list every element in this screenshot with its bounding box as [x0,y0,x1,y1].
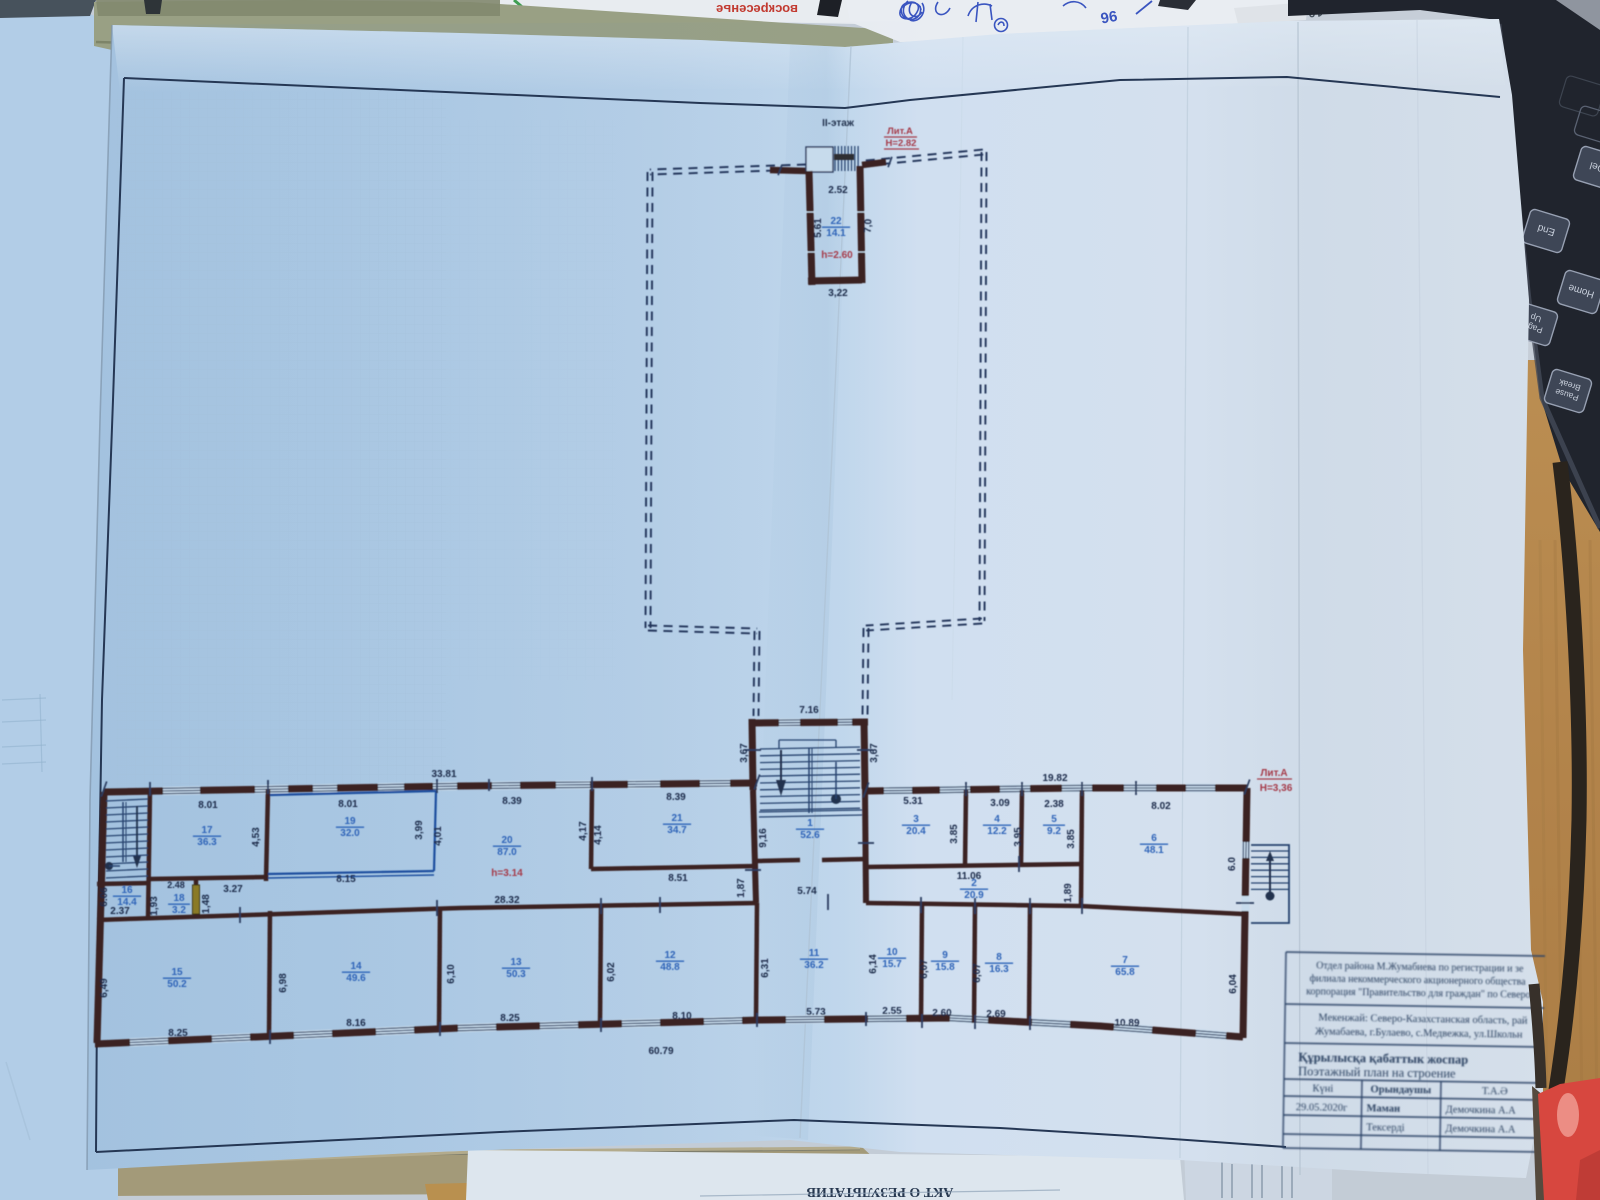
svg-text:65.8: 65.8 [1115,967,1135,978]
svg-text:7.16: 7.16 [799,705,819,716]
svg-text:8.39: 8.39 [666,792,686,803]
svg-text:6,02: 6,02 [606,962,617,982]
svg-text:2: 2 [971,878,977,889]
svg-text:20.4: 20.4 [906,826,926,837]
svg-text:48.8: 48.8 [660,962,680,973]
svg-text:Поэтажный план на строение: Поэтажный план на строение [1298,1064,1456,1080]
svg-text:5.31: 5.31 [903,796,923,807]
svg-text:6,07: 6,07 [972,963,983,983]
svg-text:11.06: 11.06 [957,871,982,882]
svg-text:Демочкина А.А: Демочкина А.А [1445,1105,1516,1117]
svg-text:Н=3,36: Н=3,36 [1260,783,1293,794]
svg-text:8.39: 8.39 [502,796,522,807]
svg-text:28.32: 28.32 [494,895,519,906]
svg-text:3,67: 3,67 [869,743,880,763]
svg-text:14.4: 14.4 [117,897,137,908]
svg-text:7: 7 [1122,955,1128,966]
svg-text:10: 10 [886,947,898,958]
svg-text:8.10: 8.10 [672,1011,692,1022]
svg-text:5.74: 5.74 [797,886,817,897]
svg-text:Т.А.Ә: Т.А.Ә [1482,1086,1508,1097]
svg-text:6.06: 6.06 [99,887,110,907]
svg-text:5.73: 5.73 [806,1007,826,1018]
svg-text:8.16: 8.16 [346,1018,366,1029]
svg-text:4,53: 4,53 [251,827,262,847]
svg-text:19: 19 [344,816,356,827]
svg-text:3,99: 3,99 [414,820,425,840]
svg-text:15.8: 15.8 [935,962,955,973]
svg-text:6,14: 6,14 [868,954,879,974]
svg-text:13: 13 [510,957,522,968]
svg-text:8.25: 8.25 [168,1028,188,1039]
svg-text:9,16: 9,16 [758,828,769,848]
svg-text:21: 21 [671,813,683,824]
svg-text:Демочкина А.А: Демочкина А.А [1445,1124,1516,1136]
svg-text:2.69: 2.69 [986,1009,1006,1020]
svg-text:6,07: 6,07 [919,959,930,979]
svg-text:50.2: 50.2 [167,979,187,990]
svg-text:8.25: 8.25 [500,1013,520,1024]
svg-text:12: 12 [664,950,676,961]
svg-text:5.61: 5.61 [813,218,824,238]
svg-text:15: 15 [171,967,183,978]
svg-text:17: 17 [201,825,213,836]
svg-text:15.7: 15.7 [882,959,902,970]
svg-text:34.7: 34.7 [667,825,687,836]
svg-text:36.2: 36.2 [804,960,824,971]
svg-text:3,22: 3,22 [828,288,848,299]
svg-text:1,48: 1,48 [201,894,212,914]
svg-text:1,89: 1,89 [1063,883,1074,903]
svg-text:8: 8 [996,952,1002,963]
svg-text:49.6: 49.6 [346,973,366,984]
svg-text:12.2: 12.2 [987,826,1007,837]
svg-text:АКТ О РЕЗУЛЬТАТИВ: АКТ О РЕЗУЛЬТАТИВ [807,1184,954,1199]
svg-text:32.0: 32.0 [340,828,360,839]
svg-text:2.60: 2.60 [932,1008,952,1019]
svg-text:8.15: 8.15 [336,874,356,885]
svg-text:h=3.14: h=3.14 [491,868,523,879]
svg-text:3,67: 3,67 [739,743,750,763]
svg-text:20: 20 [501,835,513,846]
svg-text:6,31: 6,31 [760,958,771,978]
svg-text:16: 16 [121,885,133,896]
svg-text:1,87: 1,87 [736,878,747,898]
svg-text:9.2: 9.2 [1047,826,1061,837]
svg-text:Күні: Күні [1312,1083,1333,1094]
svg-text:10.89: 10.89 [1114,1018,1139,1029]
svg-text:19.82: 19.82 [1042,773,1067,784]
svg-text:2.52: 2.52 [828,185,848,196]
svg-text:6: 6 [1151,833,1157,844]
svg-text:20.9: 20.9 [964,890,984,901]
svg-text:3.95: 3.95 [1013,827,1024,847]
svg-text:6,98: 6,98 [278,973,289,993]
svg-text:87.0: 87.0 [497,847,517,858]
svg-text:60.79: 60.79 [648,1046,673,1057]
svg-text:36.3: 36.3 [197,837,217,848]
svg-text:1,93: 1,93 [149,896,160,916]
svg-text:52.6: 52.6 [800,830,820,841]
svg-text:Тексерді: Тексерді [1366,1122,1405,1134]
svg-text:3.85: 3.85 [1066,829,1077,849]
svg-text:18: 18 [173,893,185,904]
svg-text:9: 9 [942,950,948,961]
svg-text:4: 4 [994,814,1000,825]
svg-text:3.2: 3.2 [172,905,186,916]
svg-text:8.51: 8.51 [668,873,688,884]
svg-text:Лит.А: Лит.А [887,126,913,137]
svg-text:II-этаж: II-этаж [822,118,855,129]
svg-text:22: 22 [830,216,842,227]
svg-text:Лит.А: Лит.А [1260,768,1287,779]
svg-text:8.01: 8.01 [198,800,218,811]
svg-text:14: 14 [350,961,362,972]
svg-text:3.27: 3.27 [223,884,243,895]
svg-text:14.1: 14.1 [826,228,846,239]
svg-text:8.01: 8.01 [338,799,358,810]
svg-text:4,17: 4,17 [578,821,589,841]
svg-text:h=2.60: h=2.60 [821,250,853,261]
svg-text:48.1: 48.1 [1144,845,1164,856]
svg-text:4,01: 4,01 [433,826,444,846]
svg-text:8.02: 8.02 [1151,801,1171,812]
svg-text:3: 3 [913,814,919,825]
svg-text:Орындаушы: Орындаушы [1370,1084,1431,1096]
svg-text:29.05.2020г: 29.05.2020г [1296,1102,1348,1114]
svg-text:2.55: 2.55 [882,1006,902,1017]
svg-text:1: 1 [807,818,813,829]
svg-text:11: 11 [809,948,820,959]
svg-text:6,49: 6,49 [99,978,110,998]
svg-text:6.0: 6.0 [1227,857,1238,871]
svg-text:Маман: Маман [1366,1103,1400,1115]
svg-text:5: 5 [1051,814,1057,825]
svg-text:50.3: 50.3 [506,969,526,980]
svg-text:3.85: 3.85 [949,824,960,844]
svg-text:воскресенье: воскресенье [716,2,798,17]
svg-text:Н=2.82: Н=2.82 [886,138,917,149]
svg-text:6,04: 6,04 [1228,974,1239,994]
svg-text:2.48: 2.48 [167,880,185,890]
svg-text:7,0: 7,0 [863,218,875,233]
svg-text:2.38: 2.38 [1044,799,1064,810]
svg-text:3.09: 3.09 [990,798,1010,809]
svg-text:4,14: 4,14 [593,825,604,845]
svg-text:33.81: 33.81 [431,769,456,780]
svg-text:16.3: 16.3 [989,964,1009,975]
svg-text:6,10: 6,10 [446,964,457,984]
